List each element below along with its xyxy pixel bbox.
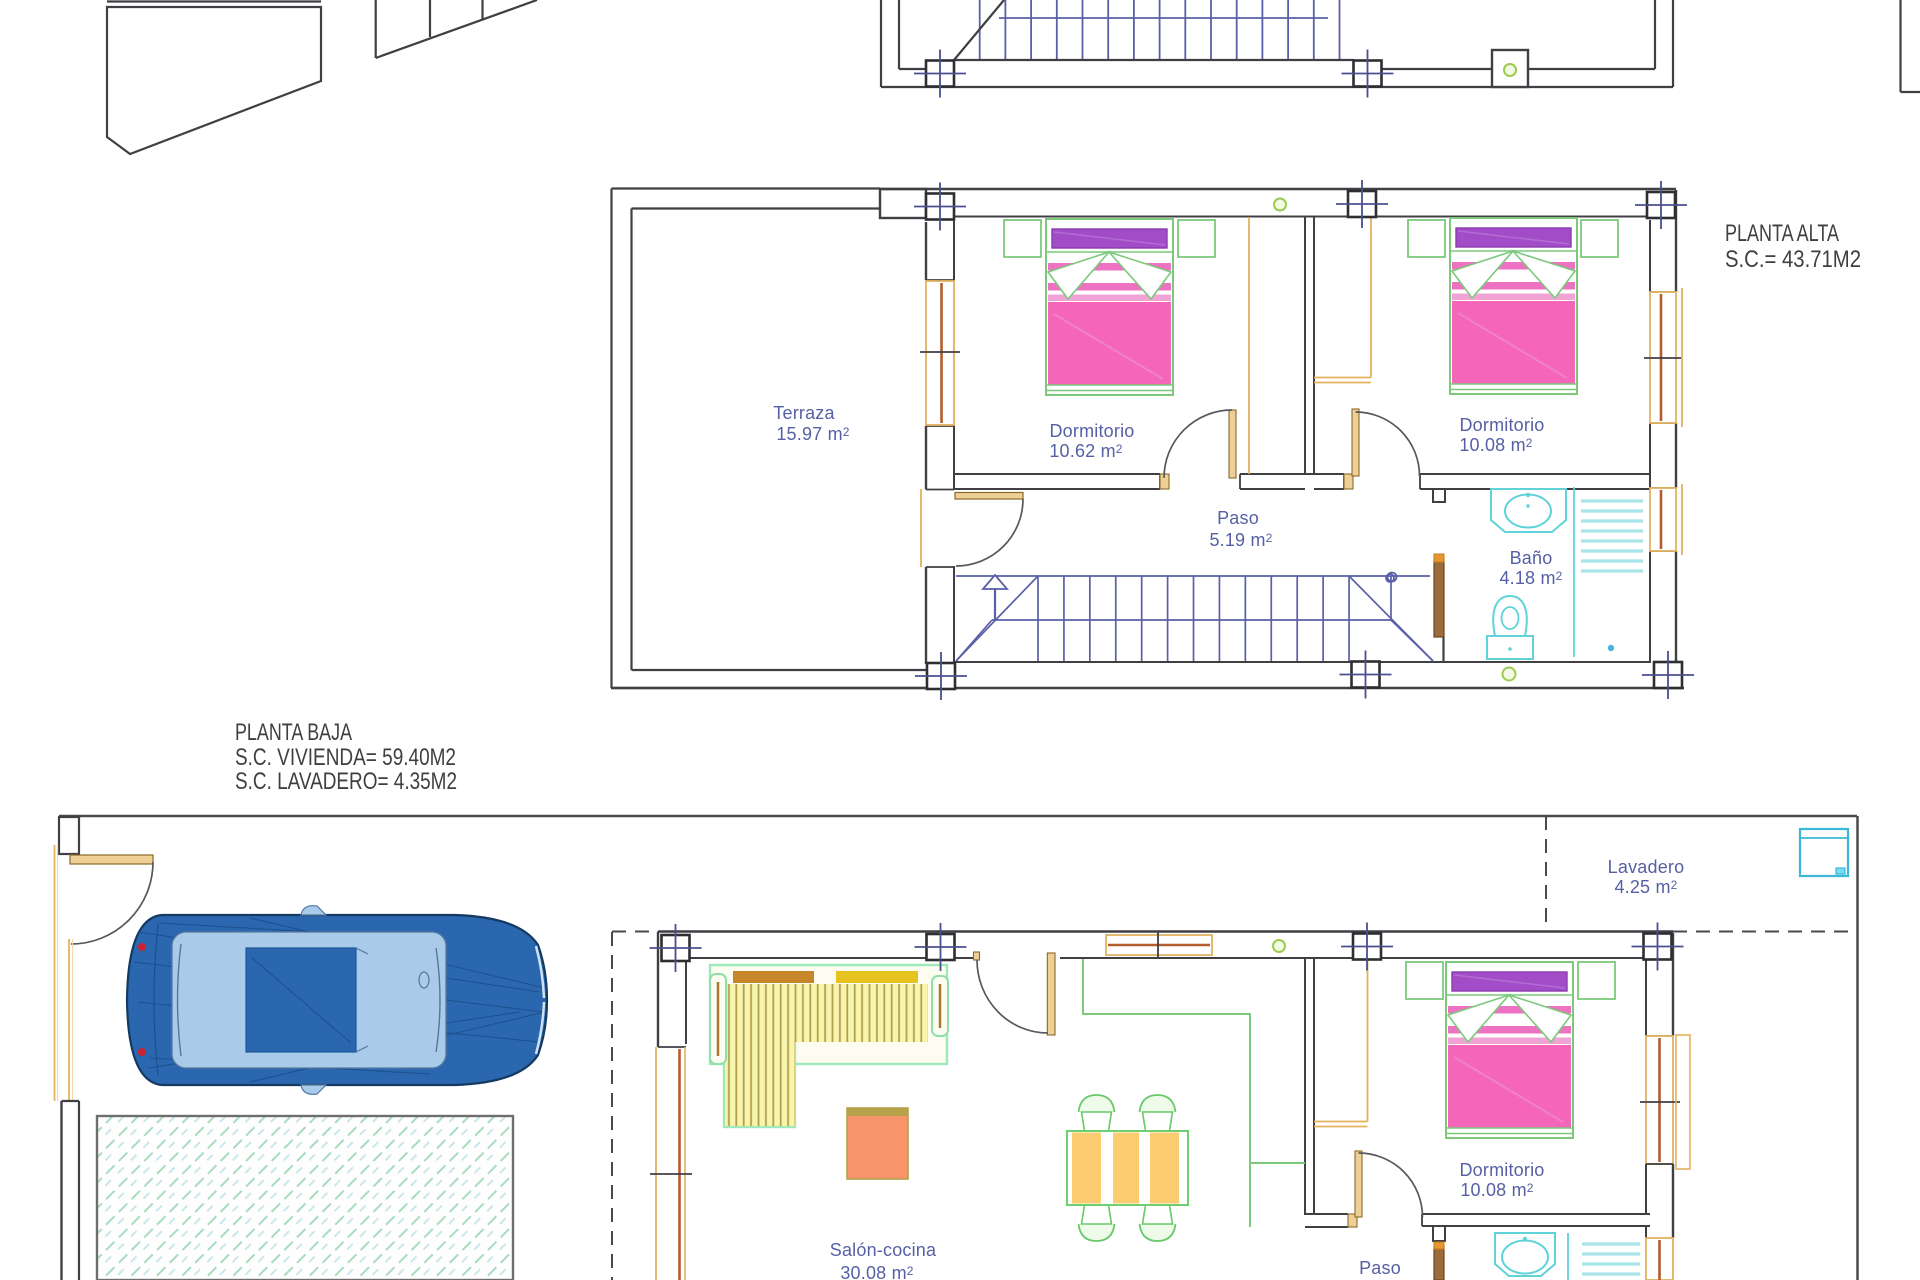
svg-text:5.19 m2: 5.19 m2 [1209,530,1272,550]
svg-text:10.08 m2: 10.08 m2 [1459,435,1532,455]
svg-text:30.08 m2: 30.08 m2 [840,1263,913,1280]
svg-text:Baño: Baño [1510,548,1553,568]
svg-text:Terraza: Terraza [773,403,835,423]
svg-text:S.C. VIVIENDA= 59.40M2: S.C. VIVIENDA= 59.40M2 [235,744,456,771]
svg-text:PLANTA ALTA: PLANTA ALTA [1725,220,1839,247]
svg-text:Salón-cocina: Salón-cocina [830,1240,937,1260]
svg-text:15.97 m2: 15.97 m2 [776,424,849,444]
svg-text:4.18 m2: 4.18 m2 [1499,568,1562,588]
svg-text:Paso: Paso [1217,508,1259,528]
svg-text:Dormitorio: Dormitorio [1459,1160,1544,1180]
svg-text:S.C. LAVADERO= 4.35M2: S.C. LAVADERO= 4.35M2 [235,768,457,795]
svg-text:10.08 m2: 10.08 m2 [1460,1180,1533,1200]
svg-text:Dormitorio: Dormitorio [1459,415,1544,435]
svg-text:PLANTA BAJA: PLANTA BAJA [235,719,352,746]
svg-text:10.62 m2: 10.62 m2 [1049,441,1122,461]
svg-text:Lavadero: Lavadero [1608,857,1685,877]
svg-text:4.25 m2: 4.25 m2 [1614,877,1677,897]
svg-text:Dormitorio: Dormitorio [1049,421,1134,441]
svg-text:Paso: Paso [1359,1258,1401,1278]
svg-text:S.C.= 43.71M2: S.C.= 43.71M2 [1725,246,1861,273]
